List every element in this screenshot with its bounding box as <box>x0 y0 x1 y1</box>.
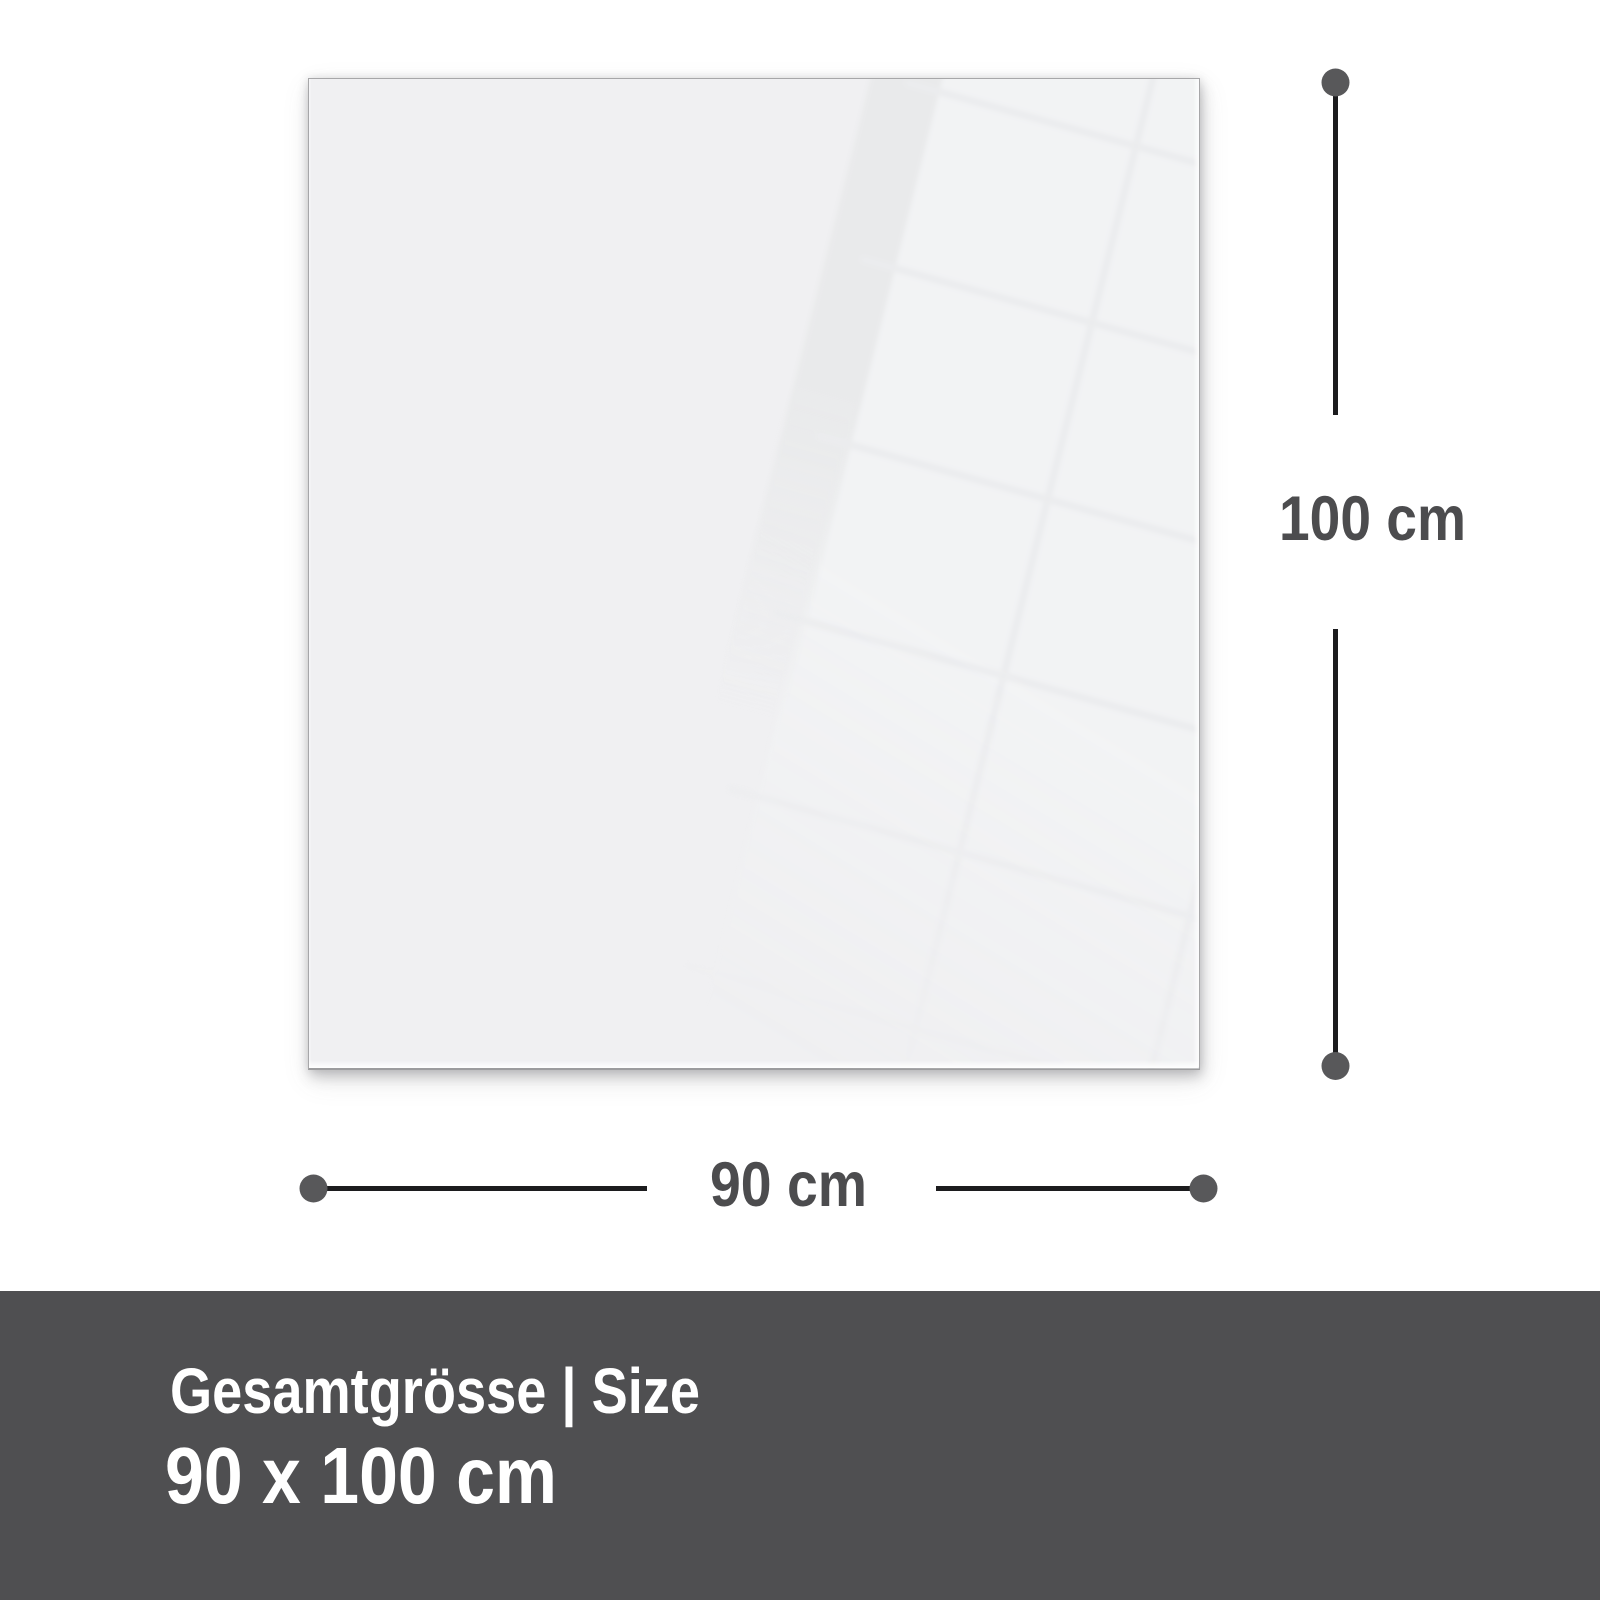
svg-text:100 cm: 100 cm <box>1279 484 1466 554</box>
svg-text:90 cm: 90 cm <box>710 1150 867 1220</box>
svg-text:Gesamtgrösse | Size: Gesamtgrösse | Size <box>170 1355 700 1428</box>
svg-text:90 x 100 cm: 90 x 100 cm <box>165 1431 557 1520</box>
